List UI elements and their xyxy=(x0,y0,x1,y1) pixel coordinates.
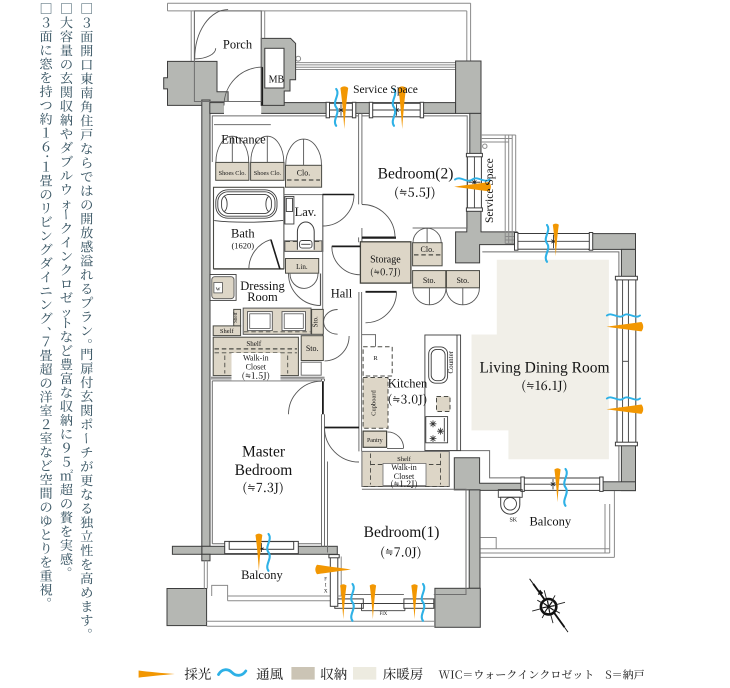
svg-text:Sto.: Sto. xyxy=(456,276,469,285)
svg-text:Bedroom(1): Bedroom(1) xyxy=(364,524,440,541)
svg-text:Shelf: Shelf xyxy=(246,340,261,348)
svg-text:Sto.: Sto. xyxy=(306,344,319,353)
svg-text:Shelf: Shelf xyxy=(220,328,235,335)
svg-text:Walk-in: Walk-in xyxy=(243,354,269,363)
svg-text:X: X xyxy=(324,590,328,595)
svg-text:Lin.: Lin. xyxy=(296,263,308,271)
svg-text:(1620): (1620) xyxy=(231,240,254,250)
svg-text:Balcony: Balcony xyxy=(529,515,571,529)
svg-text:Bedroom(2): Bedroom(2) xyxy=(378,166,454,183)
svg-text:Counter: Counter xyxy=(447,350,455,373)
svg-text:Porch: Porch xyxy=(223,38,253,52)
svg-text:Balcony: Balcony xyxy=(241,568,283,582)
svg-text:Master: Master xyxy=(242,444,286,461)
svg-text:w: w xyxy=(216,285,221,292)
svg-text:I: I xyxy=(325,584,327,589)
svg-text:Bath: Bath xyxy=(231,226,255,240)
svg-text:Kitchen: Kitchen xyxy=(388,377,428,391)
svg-text:Sto.: Sto. xyxy=(311,316,319,327)
svg-text:Cupboard: Cupboard xyxy=(371,389,378,415)
svg-text:Living Dining Room: Living Dining Room xyxy=(479,360,609,377)
svg-text:MB: MB xyxy=(269,75,285,86)
svg-text:F: F xyxy=(324,578,327,583)
svg-text:Lav.: Lav. xyxy=(295,205,317,219)
svg-text:Closet: Closet xyxy=(394,472,415,481)
svg-text:R: R xyxy=(373,355,378,362)
svg-text:Walk-in: Walk-in xyxy=(391,463,417,472)
svg-text:Shelf: Shelf xyxy=(397,456,412,463)
svg-text:Pantry: Pantry xyxy=(367,438,383,444)
svg-text:SK: SK xyxy=(509,518,517,524)
svg-text:FIX: FIX xyxy=(380,612,388,617)
svg-text:Shoes Clo.: Shoes Clo. xyxy=(219,170,247,177)
svg-text:Service Space: Service Space xyxy=(484,158,496,223)
svg-text:Shelf: Shelf xyxy=(234,312,239,323)
svg-text:Sto.: Sto. xyxy=(423,276,436,285)
svg-text:Clo.: Clo. xyxy=(297,168,311,177)
svg-text:Hall: Hall xyxy=(331,287,353,301)
svg-text:Room: Room xyxy=(247,290,278,304)
svg-text:Shoes Clo.: Shoes Clo. xyxy=(254,170,282,177)
svg-text:Clo.: Clo. xyxy=(421,245,435,254)
svg-text:Service Space: Service Space xyxy=(353,84,418,96)
svg-text:Closet: Closet xyxy=(246,363,267,372)
svg-text:Entrance: Entrance xyxy=(221,133,266,147)
svg-text:Bedroom: Bedroom xyxy=(235,462,293,479)
svg-text:Storage: Storage xyxy=(370,255,401,266)
